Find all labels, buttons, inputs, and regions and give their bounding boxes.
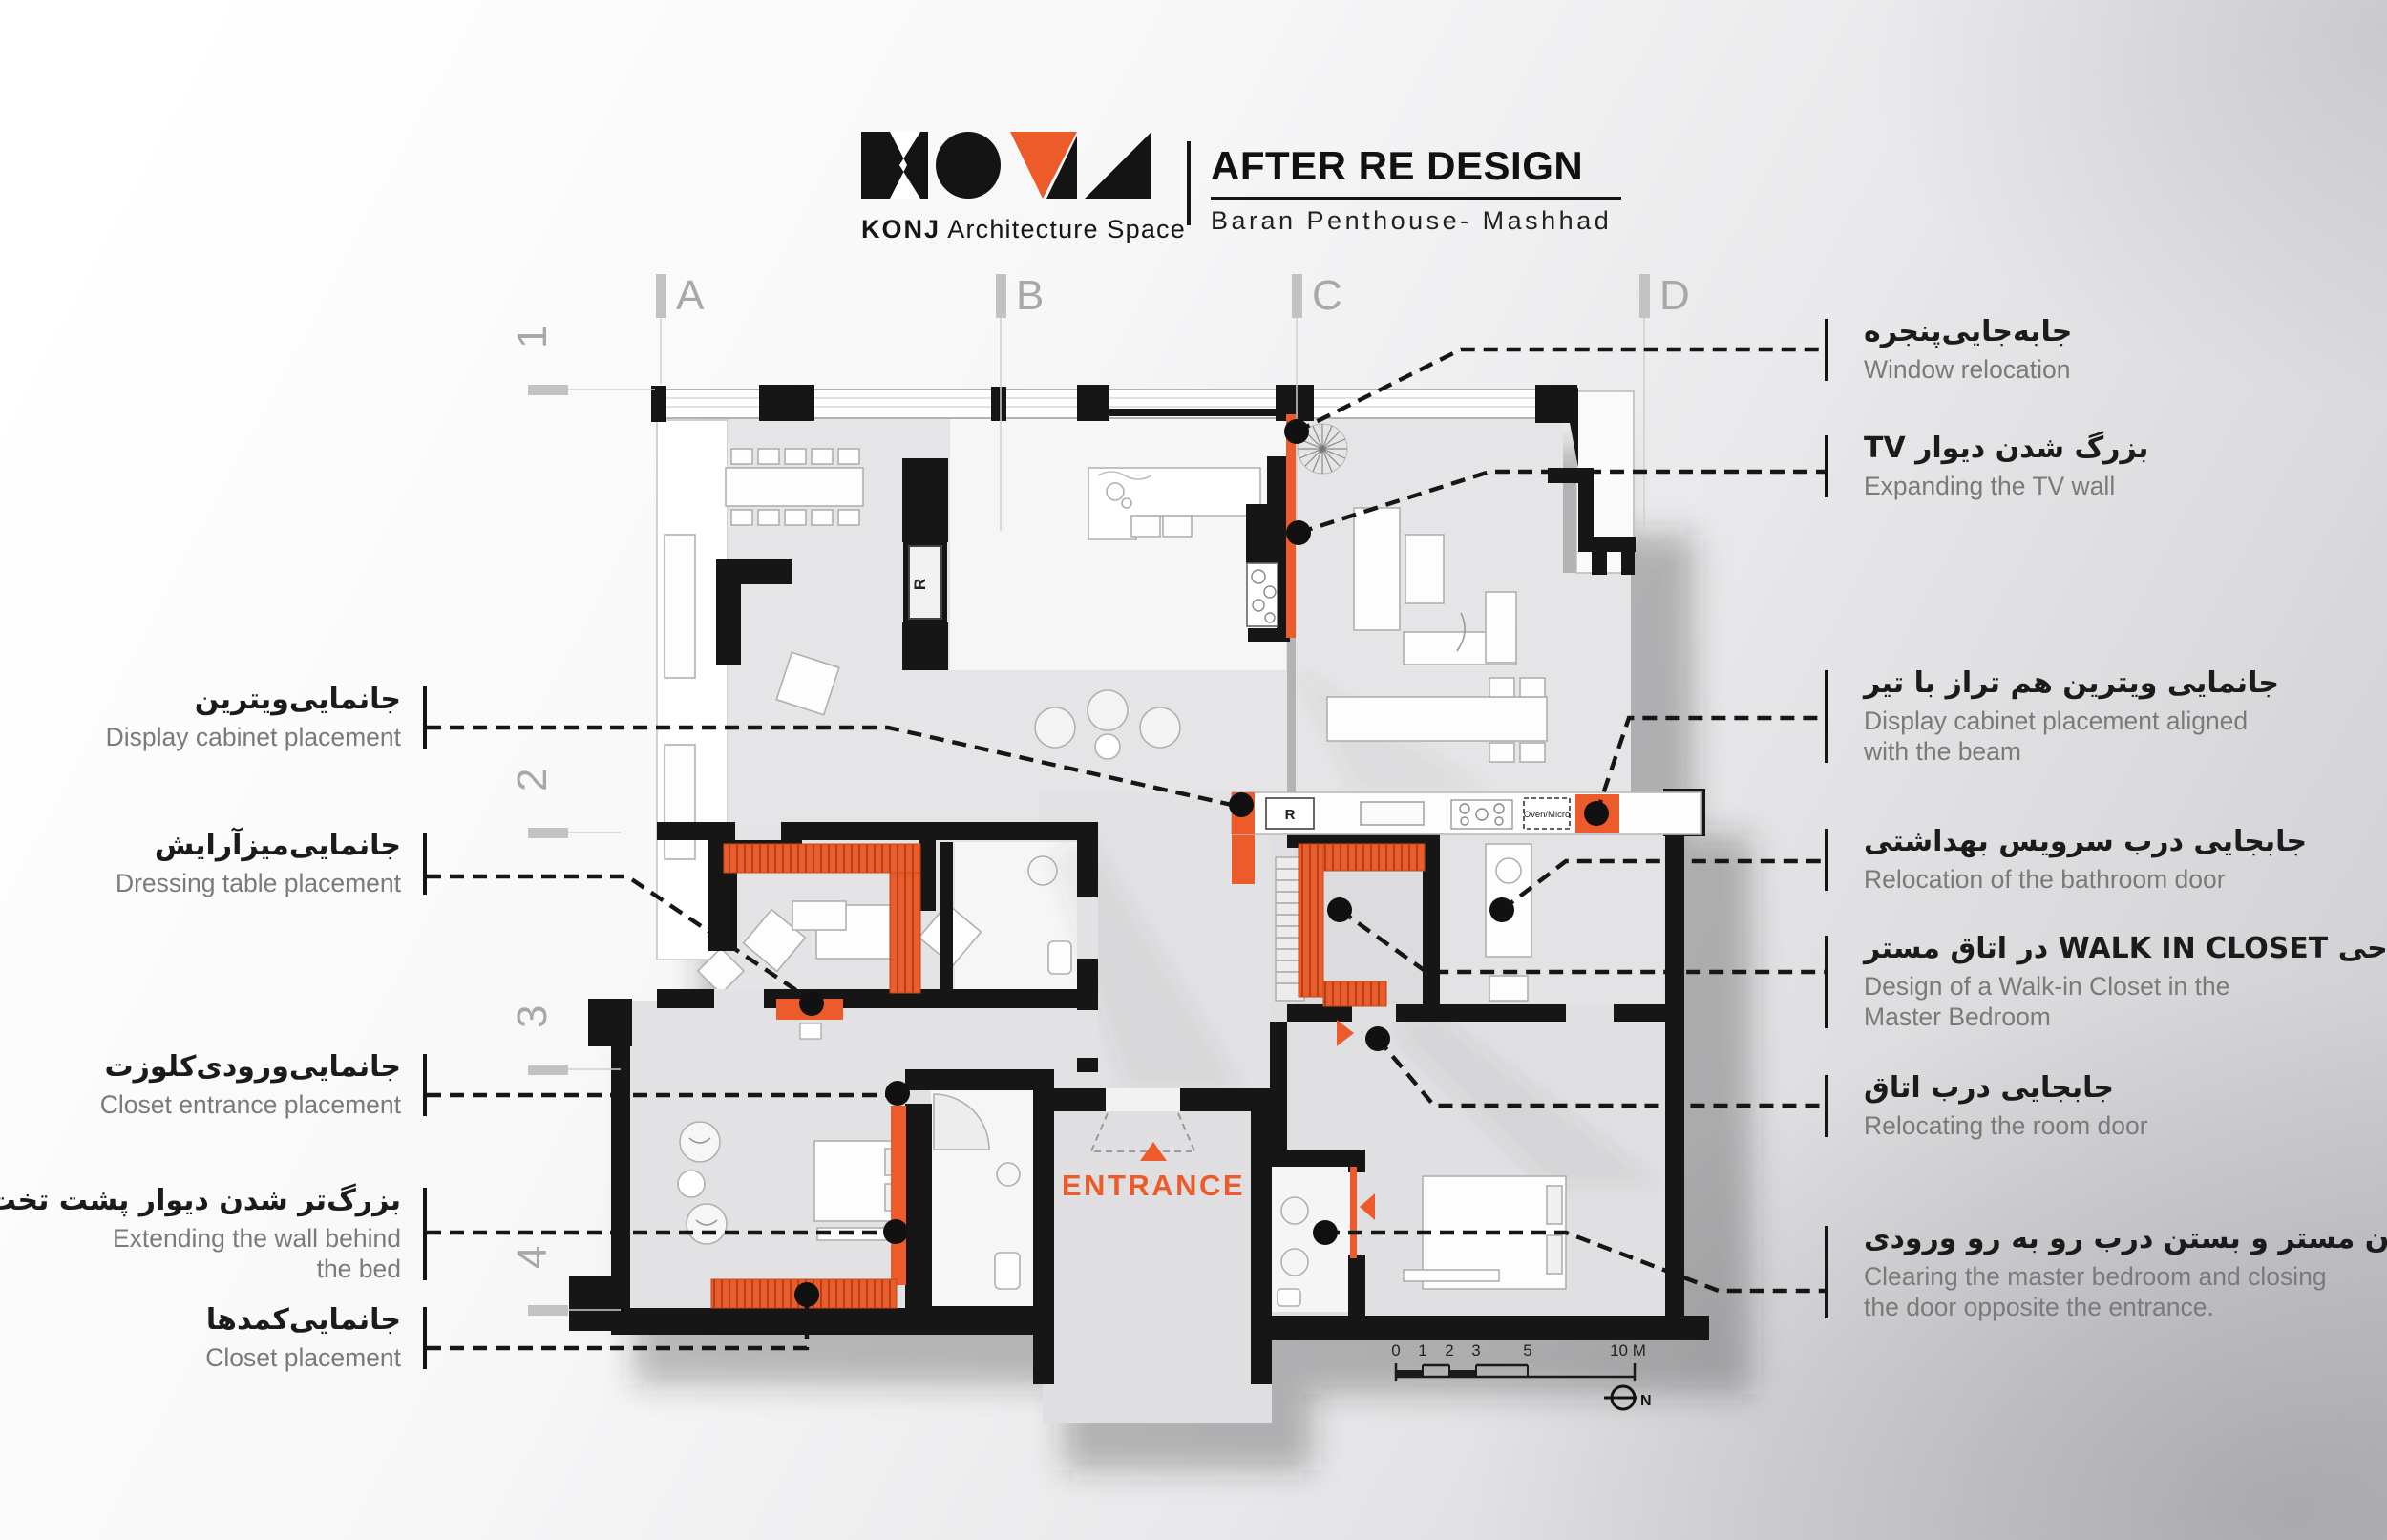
annotation-fa: شفاف کردن مستر و بستن درب رو به رو ورودی [1864,1222,2387,1257]
annotation-fa: بزرگ‌تر شدن دیوار پشت تخت [0,1184,401,1219]
annotation-bathroom-door: جابجایی درب سرویس بهداشتی Relocation of … [1864,825,2307,895]
annotation-en: Expanding the TV wall [1864,471,2148,501]
logo: KONJ Architecture Space [861,132,1167,244]
header-divider [1187,141,1191,225]
annotation-tv-wall: بزرگ شدن دیوار TV Expanding the TV wall [1864,432,2148,501]
annotation-en: Design of a Walk-in Closet in the Master… [1864,971,2387,1033]
annotation-display-cabinet: جانمایی‌ویترین Display cabinet placement [106,683,401,752]
cooktop [1247,563,1278,626]
logo-mark-icon [861,132,1157,202]
grid-col-d: D [1659,272,1690,319]
logo-brand-rest: Architecture Space [947,215,1186,243]
bed-wall-orange [891,1106,906,1285]
annotation-bed-wall: بزرگ‌تر شدن دیوار پشت تخت Extending the … [0,1184,401,1284]
grid-row-1: 1 [509,326,556,348]
annotation-fa: جانمایی ویترین هم تراز با تیر [1864,666,2279,702]
grid-col-b: B [1016,272,1044,319]
annotation-fa: جانمایی‌کمدها [205,1303,401,1339]
annotation-fa: جابجایی درب اتاق [1864,1071,2148,1107]
scale-0: 0 [1391,1341,1400,1360]
title-block: AFTER RE DESIGN Baran Penthouse- Mashhad [1211,143,1621,236]
annotation-en: Clearing the master bedroom and closing … [1864,1261,2387,1323]
annotation-fa: بزرگ شدن دیوار TV [1864,432,2148,467]
scale-1: 1 [1418,1341,1426,1360]
oven-label: Oven/Micro [1524,810,1571,820]
annotation-fa: جابه‌جایی‌پنجره [1864,315,2072,350]
scale-3: 3 [1471,1341,1480,1360]
annotation-fa: جانمایی‌ورودی‌کلوزت [100,1050,401,1086]
grid-row-2: 2 [509,769,556,791]
scale-10m: 10 M [1610,1341,1646,1360]
annotation-walkin-closet: طراحی WALK IN CLOSET در اتاق مستر Design… [1864,932,2387,1032]
annotation-en: Closet entrance placement [100,1089,401,1120]
page-subtitle: Baran Penthouse- Mashhad [1211,206,1621,236]
scale-2: 2 [1445,1341,1453,1360]
poster-canvas: R [0,0,2387,1540]
annotation-en: Display cabinet placement [106,722,401,752]
annotation-fa: جانمایی‌میزآرایش [116,829,401,864]
annotation-room-door: جابجایی درب اتاق Relocating the room doo… [1864,1071,2148,1141]
scale-5: 5 [1523,1341,1531,1360]
grid-row-4: 4 [509,1246,556,1269]
annotation-en: Display cabinet placement aligned with t… [1864,706,2279,768]
annotation-clearing-master: شفاف کردن مستر و بستن درب رو به رو ورودی… [1864,1222,2387,1322]
annotation-display-beam: جانمایی ویترین هم تراز با تیر Display ca… [1864,666,2279,767]
annotation-closet-entrance: جانمایی‌ورودی‌کلوزت Closet entrance plac… [100,1050,401,1120]
annotation-fa: طراحی WALK IN CLOSET در اتاق مستر [1864,932,2387,967]
north-label: N [1640,1393,1652,1409]
annotation-en: Relocating the room door [1864,1110,2148,1141]
logo-brand: KONJ [861,215,940,243]
grid-col-c: C [1312,272,1342,319]
annotation-en: Extending the wall behind the bed [0,1223,401,1285]
logo-wordmark: KONJ Architecture Space [861,215,1167,244]
display-counter: R Oven/Micro [1232,792,1701,834]
annotation-fa: جابجایی درب سرویس بهداشتی [1864,825,2307,860]
dining-table [726,449,863,525]
fridge-label: R [911,579,929,590]
annotation-dressing-table: جانمایی‌میزآرایش Dressing table placemen… [116,829,401,898]
annotation-en: Dressing table placement [116,868,401,898]
fridge: R [903,540,947,624]
fridge2-label: R [1285,807,1296,823]
annotation-fa: جانمایی‌ویترین [106,683,401,718]
entrance-label: ENTRANCE [1062,1169,1245,1202]
grid-row-3: 3 [509,1005,556,1028]
bathroom-door-orange [1350,1167,1357,1258]
annotation-closet-placement: جانمایی‌کمدها Closet placement [205,1303,401,1373]
annotation-en: Closet placement [205,1342,401,1373]
annotation-en: Relocation of the bathroom door [1864,864,2307,895]
grid-col-a: A [676,272,705,319]
page-title: AFTER RE DESIGN [1211,143,1621,200]
annotation-en: Window relocation [1864,354,2072,385]
annotation-window-relocation: جابه‌جایی‌پنجره Window relocation [1864,315,2072,385]
